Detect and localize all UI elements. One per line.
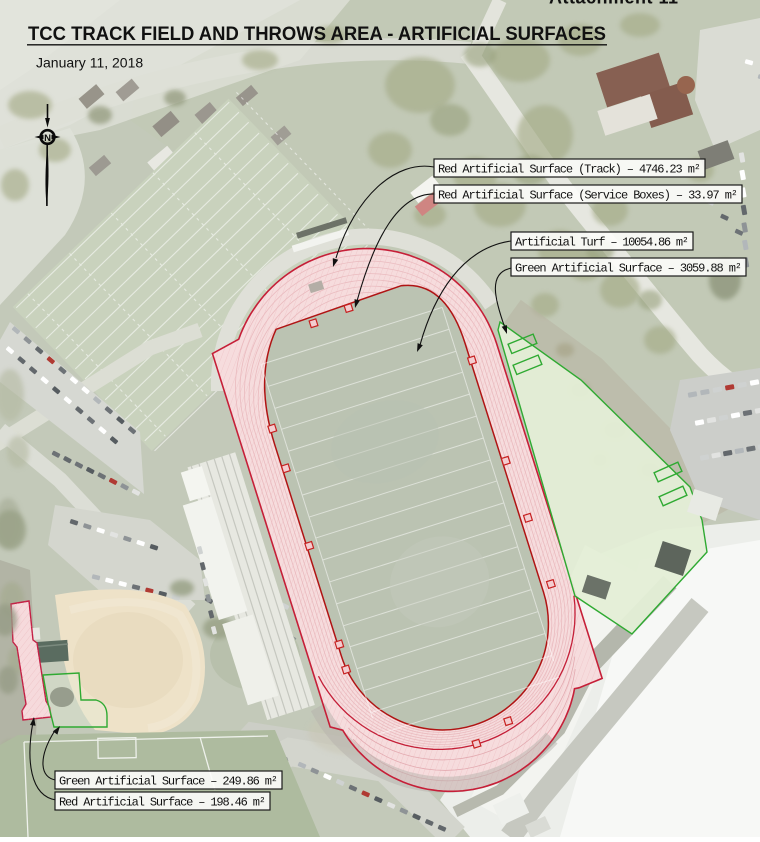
svg-text:Green Artificial Surface – 305: Green Artificial Surface – 3059.88 m² xyxy=(515,262,742,276)
svg-text:Green Artificial Surface – 249: Green Artificial Surface – 249.86 m² xyxy=(59,775,278,789)
svg-text:Red Artificial Surface (Track): Red Artificial Surface (Track) – 4746.23… xyxy=(438,163,701,177)
svg-text:TCC TRACK FIELD AND THROWS ARE: TCC TRACK FIELD AND THROWS AREA - ARTIFI… xyxy=(28,24,606,45)
svg-text:Red Artificial Surface – 198.4: Red Artificial Surface – 198.46 m² xyxy=(59,796,266,810)
svg-text:Artificial Turf – 10054.86 m²: Artificial Turf – 10054.86 m² xyxy=(515,236,689,250)
svg-text:January 11, 2018: January 11, 2018 xyxy=(36,55,143,71)
svg-text:Red Artificial Surface (Servic: Red Artificial Surface (Service Boxes) –… xyxy=(438,189,738,203)
svg-text:N: N xyxy=(44,133,51,144)
svg-text:Attachment 11: Attachment 11 xyxy=(549,0,679,8)
